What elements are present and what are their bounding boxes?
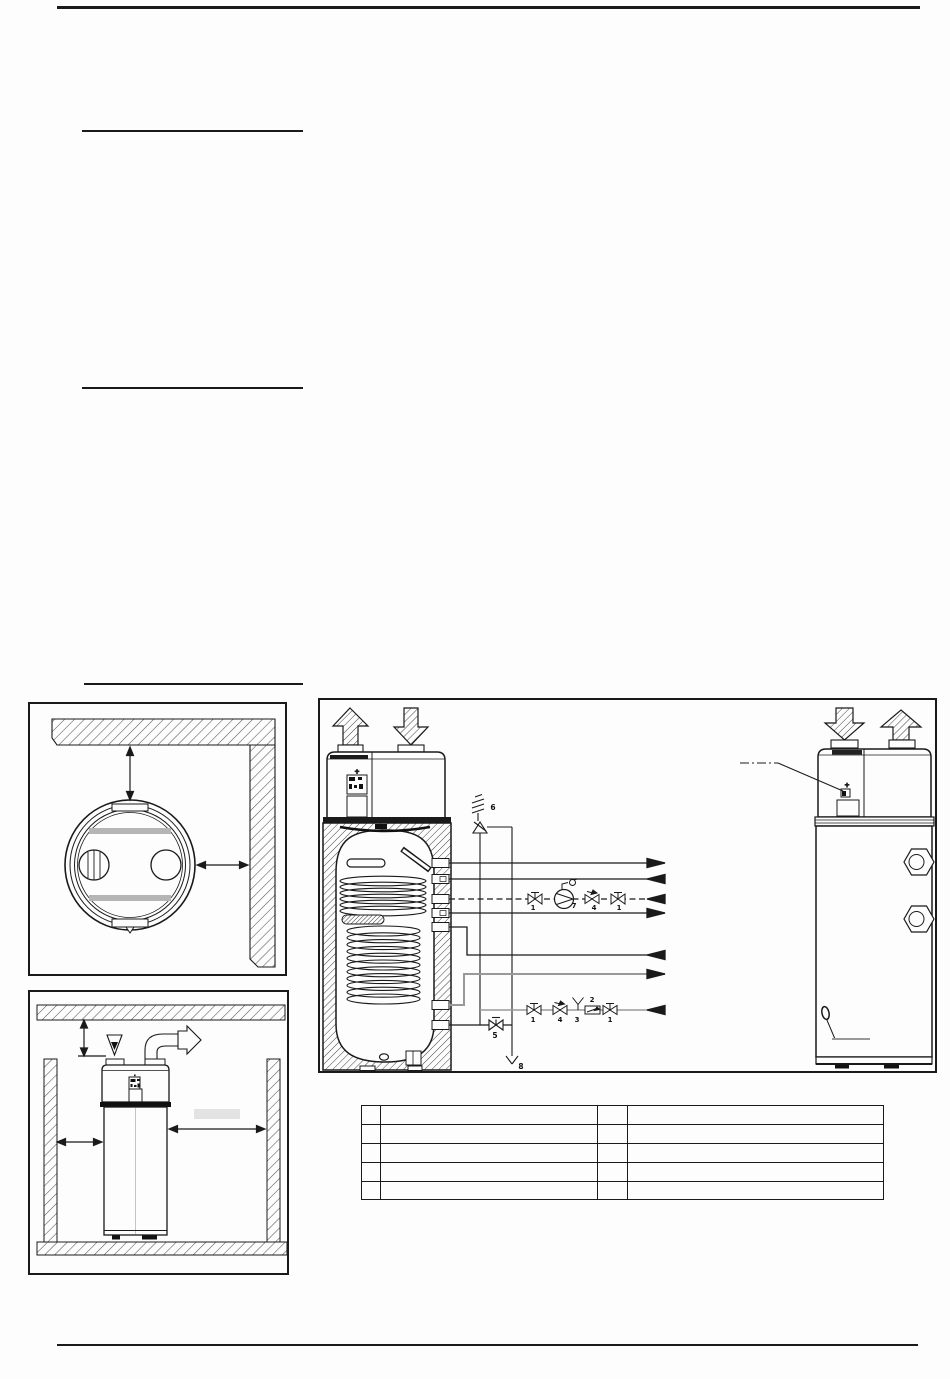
- foot-right: [142, 1236, 157, 1240]
- arrow-left-icon: [647, 895, 665, 904]
- intake-duct-collar: [831, 740, 858, 748]
- right-unit-flange: [815, 817, 934, 826]
- section-underline-1: [82, 130, 303, 132]
- label-inlet-4: 4: [558, 1016, 563, 1024]
- exhaust-air-arrow-icon: [881, 710, 921, 740]
- table-cell: [628, 1143, 884, 1162]
- intake-air-arrow-icon: [394, 708, 428, 745]
- label-recirc-7: 7: [572, 902, 577, 910]
- intake-funnel-icon: [107, 1035, 122, 1055]
- table-cell: [598, 1106, 628, 1125]
- top-clearance-arrow: [78, 1020, 106, 1056]
- right-unit-foot: [835, 1065, 849, 1069]
- left-unit-flange: [323, 817, 451, 823]
- ceiling-hatch: [37, 1005, 285, 1020]
- table-cell: [598, 1181, 628, 1200]
- crossbar-bottom: [89, 895, 171, 901]
- table-cell: [628, 1162, 884, 1181]
- arrow-right-icon: [647, 909, 665, 918]
- pipe-aux-return: [449, 974, 665, 1005]
- arrow-right-icon: [647, 970, 665, 979]
- redacted-dim-bar: [194, 1109, 240, 1119]
- label-inlet-2: 2: [590, 996, 595, 1004]
- exhaust-duct-icon: [145, 1026, 201, 1059]
- table-cell: [362, 1106, 381, 1125]
- right-unit-head: [818, 749, 931, 817]
- right-panel-plus-mark: +: [844, 782, 849, 789]
- shutoff-valve-icon: [603, 1004, 617, 1015]
- left-unit-foot: [360, 1066, 375, 1071]
- left-unit-head: [327, 752, 445, 820]
- vertical-clearance-arrow: [127, 747, 134, 800]
- left-unit-foot2: [408, 1066, 422, 1071]
- table-cell: [362, 1124, 381, 1143]
- exhaust-air-arrow-icon: [333, 708, 368, 745]
- label-safety-group: 6: [490, 803, 495, 812]
- thermowell: [347, 859, 385, 867]
- shutoff-valve-icon: [528, 893, 542, 905]
- table-cell: [598, 1143, 628, 1162]
- figure-hydraulic-schematic: +: [318, 698, 937, 1073]
- heating-element: [342, 915, 384, 924]
- table-cell: [381, 1162, 598, 1181]
- label-inlet-1: 1: [531, 1016, 536, 1024]
- intake-air-arrow-icon: [825, 708, 864, 740]
- drain-valve-icon: [489, 1018, 503, 1031]
- table-cell: [628, 1124, 884, 1143]
- exhaust-duct-collar: [889, 740, 915, 748]
- top-clearance-drawing: [30, 704, 285, 974]
- table-row: [362, 1162, 884, 1181]
- table-cell: [381, 1124, 598, 1143]
- arrow-right-icon: [647, 859, 665, 868]
- safety-spring-icon: [472, 795, 484, 822]
- table-cell: [362, 1181, 381, 1200]
- hydraulic-schematic-drawing: +: [320, 700, 935, 1071]
- intake-duct-collar: [398, 745, 424, 752]
- table-cell: [381, 1143, 598, 1162]
- bottom-fitting: [380, 1054, 389, 1060]
- rim-tab-top: [112, 804, 148, 811]
- arrow-left-icon: [647, 1006, 665, 1015]
- discharge-funnel-icon: [506, 1056, 518, 1064]
- rim-tab-bottom: [112, 919, 148, 927]
- shutoff-valve-icon: [611, 893, 625, 905]
- left-panel-plus-mark: +: [354, 769, 359, 776]
- crossbar-top: [89, 828, 171, 834]
- check-valve-icon: [553, 1001, 567, 1015]
- drain-stub: [406, 1051, 421, 1065]
- ceiling-wall-hatch: [52, 719, 275, 745]
- check-valve-icon: [585, 890, 599, 904]
- figure-top-clearance: [28, 702, 287, 976]
- table-row: [362, 1124, 884, 1143]
- safety-unit-icon: [585, 1006, 600, 1014]
- floor-hatch: [37, 1242, 287, 1255]
- horizontal-clearance-arrow: [197, 862, 248, 869]
- right-unit-foot2: [884, 1065, 899, 1069]
- manual-page: +: [0, 0, 950, 1379]
- arrow-left-icon: [647, 951, 665, 960]
- top-rule: [57, 6, 920, 9]
- right-unit-base: [816, 1057, 932, 1064]
- shutoff-valve-icon: [527, 1004, 541, 1015]
- flange-band: [100, 1102, 171, 1107]
- exhaust-duct-collar: [338, 745, 363, 752]
- table-cell: [628, 1181, 884, 1200]
- table-row: [362, 1181, 884, 1200]
- table-row: [362, 1143, 884, 1162]
- side-wall-hatch: [250, 745, 275, 967]
- figure-side-clearance: [28, 990, 289, 1275]
- label-inlet-1b: 1: [608, 1016, 613, 1024]
- side-clearance-drawing: [30, 992, 287, 1273]
- table-cell: [362, 1162, 381, 1181]
- table-row: [362, 1106, 884, 1125]
- heater-unit-side: [100, 1059, 171, 1240]
- section-underline-3: [84, 683, 303, 685]
- right-wall-hatch: [267, 1059, 280, 1245]
- table-cell: [381, 1181, 598, 1200]
- table-cell: [598, 1124, 628, 1143]
- label-inlet-3: 3: [575, 1016, 580, 1024]
- arrow-left-icon: [647, 875, 665, 884]
- foot-left: [112, 1236, 120, 1240]
- safety-valve-icon: [473, 822, 487, 833]
- pipe-aux-flow: [449, 927, 665, 955]
- label-recirc-1: 1: [531, 904, 536, 912]
- legend-table: [361, 1105, 884, 1200]
- label-recirc-4: 4: [592, 904, 597, 912]
- exhaust-collar: [145, 1059, 165, 1065]
- left-clearance-arrow: [57, 1139, 102, 1146]
- label-recirc-1b: 1: [617, 904, 622, 912]
- test-funnel-icon: [573, 998, 584, 1011]
- table-cell: [598, 1162, 628, 1181]
- table-cell: [628, 1106, 884, 1125]
- section-underline-2: [82, 387, 303, 389]
- right-clearance-arrow: [169, 1126, 265, 1133]
- label-drain-valve: 5: [492, 1031, 497, 1040]
- duct-port-right: [151, 850, 181, 880]
- intake-collar: [106, 1059, 124, 1065]
- left-wall-hatch: [44, 1059, 57, 1245]
- bottom-rule: [57, 1344, 918, 1346]
- table-cell: [362, 1143, 381, 1162]
- table-cell: [381, 1106, 598, 1125]
- label-discharge-funnel: 8: [518, 1062, 523, 1071]
